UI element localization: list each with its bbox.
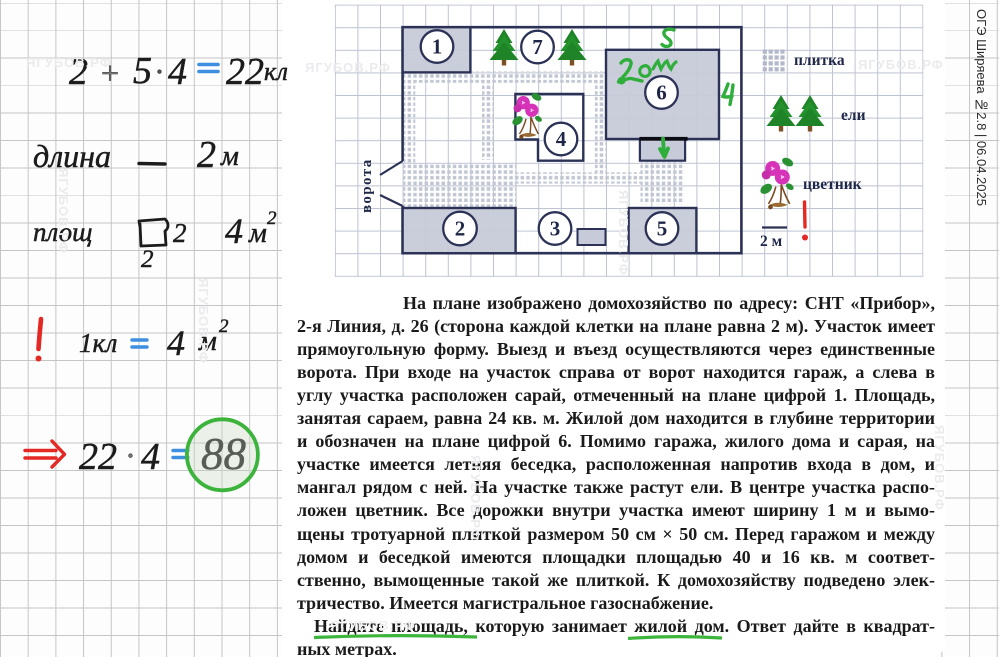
svg-text:4: 4 (556, 127, 567, 151)
svg-text:плитка: плитка (794, 52, 845, 69)
svg-text:2: 2 (455, 217, 466, 241)
svg-text:5: 5 (657, 217, 668, 241)
svg-text:цветник: цветник (803, 176, 862, 193)
svg-text:1: 1 (432, 35, 443, 59)
svg-text:3: 3 (550, 217, 561, 241)
svg-text:2 м: 2 м (760, 233, 783, 250)
svg-text:ели: ели (841, 107, 866, 124)
svg-text:ворота: ворота (359, 158, 375, 213)
svg-text:6: 6 (656, 81, 667, 105)
svg-text:7: 7 (532, 35, 543, 59)
